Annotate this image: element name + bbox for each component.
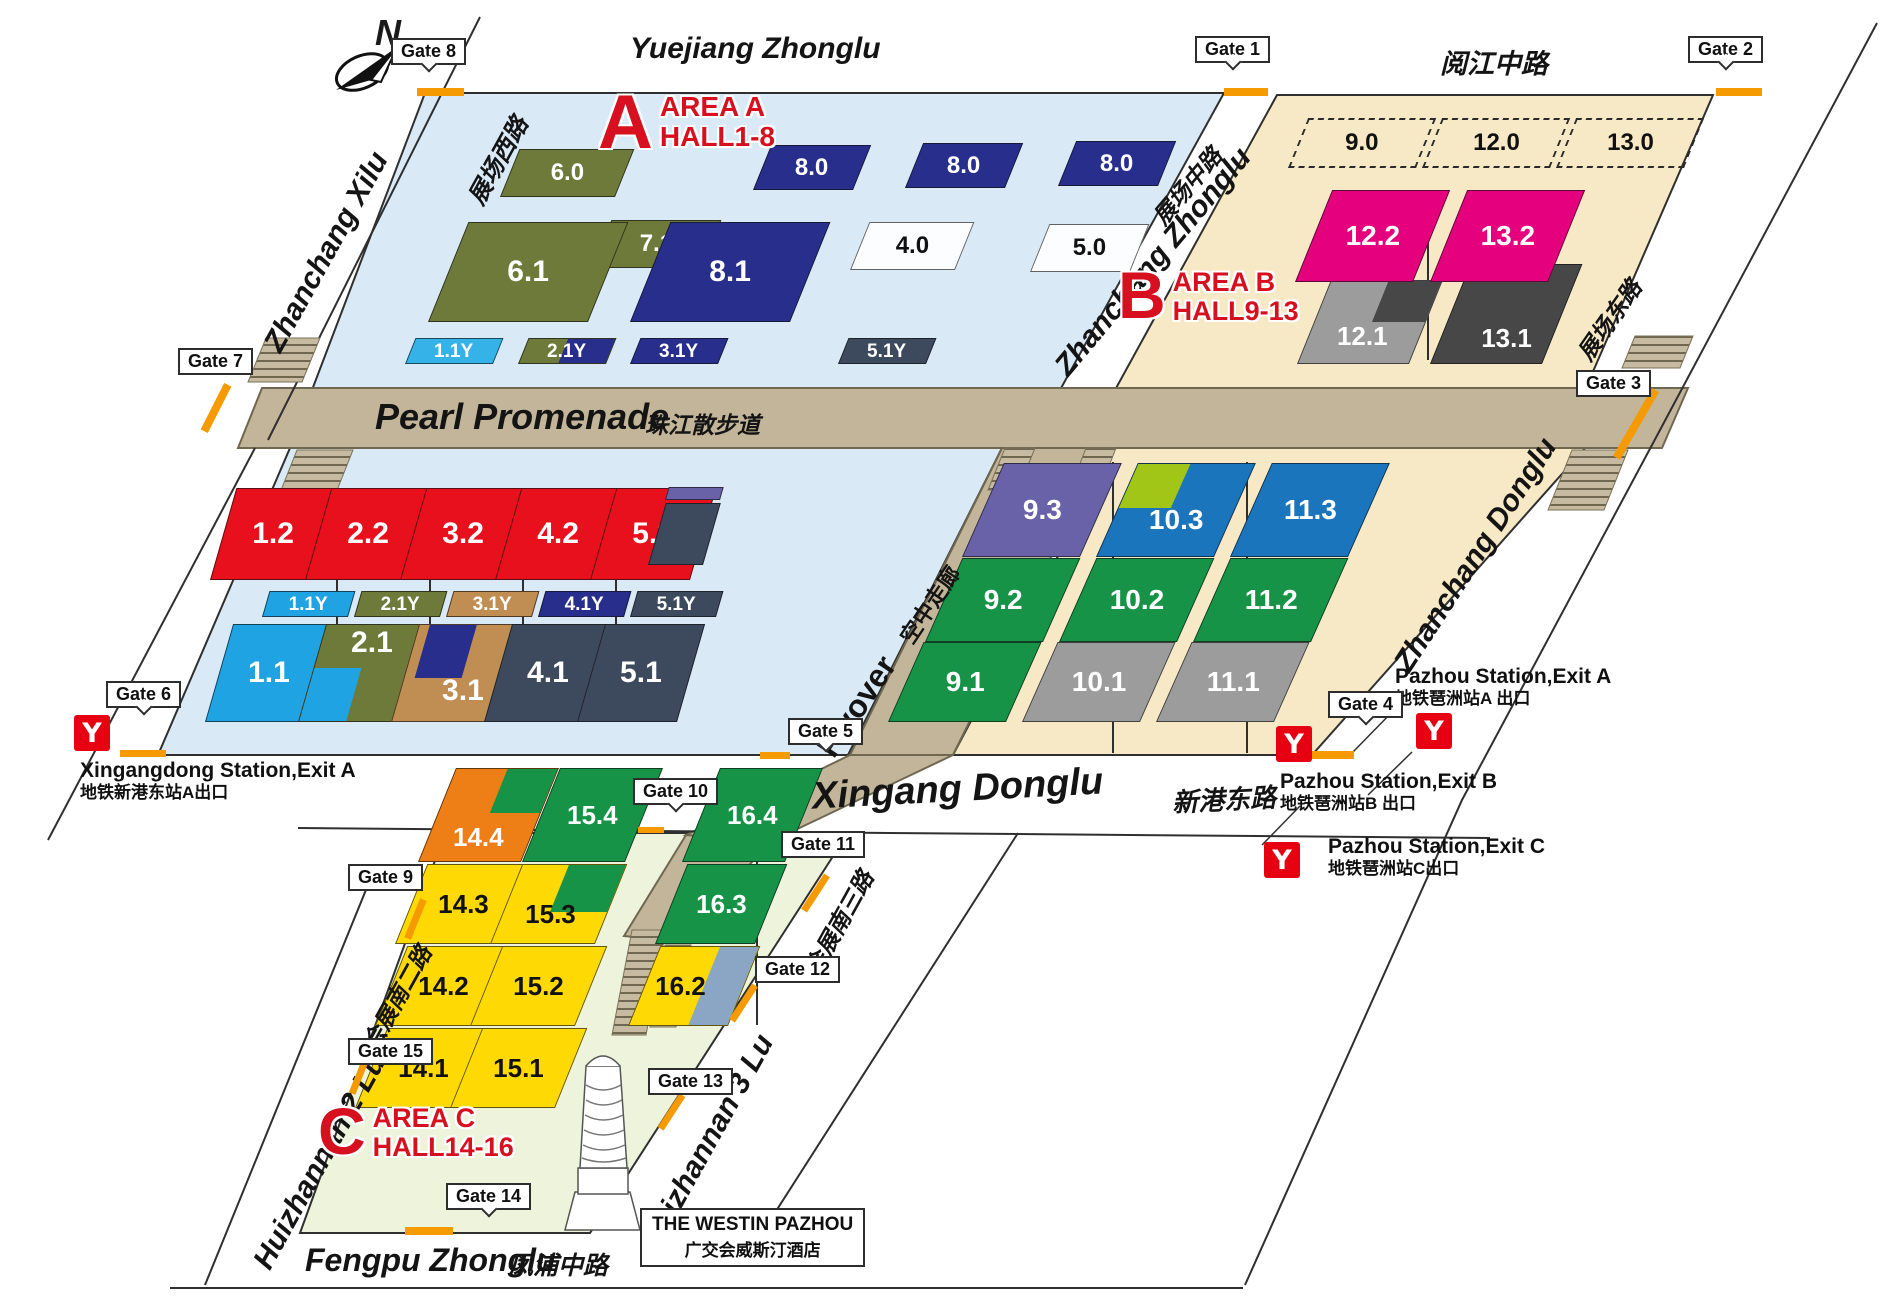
- hall-label: 16.2: [655, 973, 706, 999]
- hall-label: 5.1Y: [657, 595, 696, 614]
- gate-5-entrance-marker: [760, 752, 790, 759]
- gate-name: Gate 7: [188, 351, 243, 371]
- hall-label: 1.1Y: [289, 595, 328, 614]
- hall-a1.1Y: 1.1Y: [405, 338, 504, 364]
- hall-a5.1Y: 5.1Y: [838, 338, 937, 364]
- gate-12-label: Gate 12: [755, 956, 840, 983]
- metro-icon-pazhou-c: Y: [1264, 842, 1300, 878]
- area-c-letter: C: [318, 1104, 366, 1158]
- station-name-cn: 地铁琶洲站B 出口: [1280, 794, 1497, 814]
- gate-4-entrance-marker: [1312, 751, 1354, 759]
- hall-label: 15.1: [493, 1055, 544, 1081]
- station-pazhou-exit-c: Pazhou Station,Exit C 地铁琶洲站C出口: [1328, 834, 1545, 880]
- hall-8.0b: 8.0: [905, 143, 1023, 188]
- hall-label: 8.0: [947, 154, 980, 178]
- hall-label: 2.1: [351, 628, 393, 658]
- area-c-label: C AREA C HALL14-16: [318, 1104, 514, 1162]
- hall-label: 9.3: [1022, 496, 1061, 524]
- hall-label: 2.1Y: [548, 342, 587, 361]
- hall-label: 15.4: [567, 802, 618, 828]
- gate-15-label: Gate 15: [348, 1038, 433, 1065]
- hall-a2.1Y: 2.1Y: [518, 338, 617, 364]
- gate-2-entrance-marker: [1716, 88, 1762, 96]
- hall-label: 5.0: [1073, 236, 1106, 260]
- hall-m1.1Y: 1.1Y: [262, 591, 355, 617]
- hall-label: 11.2: [1244, 586, 1297, 614]
- hall-label: 4.2: [537, 519, 579, 549]
- area-b-letter: B: [1118, 268, 1166, 322]
- compass-rose: [331, 46, 397, 97]
- metro-icon-xingangdong: Y: [74, 715, 110, 751]
- hall-label: 13.1: [1481, 325, 1532, 351]
- gate-6-label: Gate 6: [106, 681, 181, 708]
- hall-m2.1Y: 2.1Y: [354, 591, 447, 617]
- gate-3-label: Gate 3: [1576, 370, 1651, 397]
- westin-name-cn: 广交会威斯汀酒店: [652, 1236, 853, 1261]
- gate-name: Gate 15: [358, 1041, 423, 1061]
- area-a-letter: A: [598, 92, 653, 154]
- hall-label: 4.1: [527, 658, 569, 688]
- area-a-halls: HALL1-8: [660, 122, 775, 152]
- hall-label: 1.1: [248, 658, 290, 688]
- gate-2-label: Gate 2: [1688, 36, 1763, 63]
- hall-label: 11.1: [1206, 668, 1259, 696]
- gate-4-label: Gate 4: [1328, 691, 1403, 718]
- hall-label: 16.4: [727, 802, 778, 828]
- hall-label: 1.1Y: [435, 342, 474, 361]
- hall-13.0: 13.0: [1556, 118, 1704, 168]
- canton-fair-complex-map: N 6.08.08.08.07.14.05.06.18.11.1Y2.1Y3.1…: [0, 0, 1900, 1316]
- metro-glyph: Y: [1284, 729, 1304, 760]
- hall-label: 3.1Y: [473, 595, 512, 614]
- gate-13-label: Gate 13: [648, 1068, 733, 1095]
- hall-label: 6.1: [507, 257, 549, 287]
- gate-1-entrance-marker: [1224, 88, 1268, 96]
- hall-label: 16.3: [696, 891, 747, 917]
- hall-label: 12.1: [1337, 323, 1388, 349]
- hall-label: 1.2: [252, 519, 294, 549]
- metro-glyph: Y: [1272, 845, 1292, 876]
- hall-label: 5.1: [620, 658, 662, 688]
- hall-label: 13.0: [1607, 131, 1654, 155]
- hall-label: 10.1: [1072, 668, 1127, 696]
- hall-label: 15.2: [513, 973, 564, 999]
- hall-label: 12.0: [1473, 131, 1520, 155]
- hall-label: 10.3: [1149, 506, 1204, 534]
- hall-label: 10.2: [1109, 586, 1164, 614]
- metro-icon-pazhou-a: Y: [1416, 713, 1452, 749]
- hall-label: 8.0: [1100, 152, 1133, 176]
- gate-14-label: Gate 14: [446, 1183, 531, 1210]
- street-xingang-donglu-cn: 新港东路: [1171, 777, 1277, 819]
- station-pazhou-exit-b: Pazhou Station,Exit B 地铁琶洲站B 出口: [1280, 769, 1497, 815]
- hall-label: 4.1Y: [565, 595, 604, 614]
- station-pazhou-exit-a: Pazhou Station,Exit A 地铁琶洲站A 出口: [1395, 664, 1611, 710]
- hall-8.0c: 8.0: [1058, 141, 1176, 186]
- gate-name: Gate 3: [1586, 373, 1641, 393]
- area-c-halls: HALL14-16: [373, 1133, 514, 1162]
- gate-name: Gate 12: [765, 959, 830, 979]
- gate-name: Gate 13: [658, 1071, 723, 1091]
- hall-label: 8.0: [795, 156, 828, 180]
- pearl-promenade-label: Pearl Promenade: [375, 396, 669, 438]
- gate-10-label: Gate 10: [633, 778, 718, 805]
- gate-10-entrance-marker: [638, 827, 664, 833]
- station-name-cn: 地铁琶洲站C出口: [1328, 859, 1545, 879]
- gate-8-entrance-marker: [417, 88, 464, 96]
- hall-label: 3.1: [442, 676, 484, 706]
- station-name-cn: 地铁琶洲站A 出口: [1395, 689, 1611, 709]
- hall-12.0: 12.0: [1422, 118, 1570, 168]
- area-a-name: AREA A: [660, 92, 775, 122]
- hall-5.2-annex: [665, 487, 724, 500]
- station-xingangdong-exit-a: Xingangdong Station,Exit A 地铁新港东站A出口: [80, 758, 356, 804]
- gate-name: Gate 11: [791, 834, 855, 854]
- hall-label: 2.1Y: [381, 595, 420, 614]
- hall-label: 11.3: [1283, 496, 1336, 524]
- station-name: Pazhou Station,Exit C: [1328, 834, 1545, 859]
- hall-label: 3.1Y: [660, 342, 699, 361]
- hall-m5.1Y: 5.1Y: [630, 591, 723, 617]
- gate-14-entrance-marker: [405, 1227, 453, 1235]
- station-name: Xingangdong Station,Exit A: [80, 758, 356, 783]
- area-b-name: AREA B: [1173, 268, 1299, 297]
- gate-name: Gate 9: [358, 867, 413, 887]
- hall-label: 9.2: [983, 586, 1022, 614]
- station-name: Pazhou Station,Exit B: [1280, 769, 1497, 794]
- hall-label: 12.2: [1345, 222, 1400, 250]
- metro-glyph: Y: [82, 718, 102, 749]
- street-yuejiang-zhonglu-cn: 阅江中路: [1440, 42, 1548, 81]
- hall-label: 14.3: [438, 891, 489, 917]
- hall-section: [414, 625, 476, 678]
- hall-label: 9.0: [1345, 131, 1378, 155]
- station-name: Pazhou Station,Exit A: [1395, 664, 1611, 689]
- hall-label: 15.3: [525, 901, 576, 927]
- westin-pazhou-callout: THE WESTIN PAZHOU 广交会威斯汀酒店: [640, 1208, 865, 1267]
- hall-label: 8.1: [709, 257, 751, 287]
- area-c-name: AREA C: [373, 1104, 514, 1133]
- station-name-cn: 地铁新港东站A出口: [80, 783, 356, 803]
- hall-9.0: 9.0: [1288, 118, 1436, 168]
- gate-8-label: Gate 8: [391, 38, 466, 65]
- gate-1-label: Gate 1: [1195, 36, 1270, 63]
- hall-label: 3.2: [442, 519, 484, 549]
- street-fengpu-zhonglu-cn: 凤浦中路: [508, 1246, 608, 1282]
- pearl-promenade-label-cn: 珠江散步道: [645, 406, 760, 440]
- metro-glyph: Y: [1424, 716, 1444, 747]
- hall-label: 14.4: [453, 824, 504, 850]
- gate-5-label: Gate 5: [788, 718, 863, 745]
- hall-label: 6.0: [551, 161, 584, 185]
- metro-icon-pazhou-b: Y: [1276, 726, 1312, 762]
- hall-m3.1Y: 3.1Y: [446, 591, 539, 617]
- area-b-label: B AREA B HALL9-13: [1118, 268, 1299, 326]
- hall-label: 13.2: [1480, 222, 1535, 250]
- westin-name: THE WESTIN PAZHOU: [652, 1214, 853, 1236]
- gate-11-label: Gate 11: [781, 831, 865, 858]
- hall-label: 2.2: [347, 519, 389, 549]
- hall-4.0: 4.0: [850, 222, 974, 270]
- area-a-label: A AREA A HALL1-8: [598, 92, 775, 154]
- hall-label: 4.0: [896, 234, 929, 258]
- hall-m4.1Y: 4.1Y: [538, 591, 631, 617]
- gate-9-label: Gate 9: [348, 864, 423, 891]
- gate-6-entrance-marker: [120, 750, 166, 757]
- area-b-halls: HALL9-13: [1173, 297, 1299, 326]
- street-yuejiang-zhonglu: Yuejiang Zhonglu: [630, 32, 881, 66]
- gate-7-label: Gate 7: [178, 348, 253, 375]
- hall-label: 5.1Y: [868, 342, 907, 361]
- hall-a3.1Y: 3.1Y: [630, 338, 729, 364]
- hall-label: 9.1: [945, 668, 984, 696]
